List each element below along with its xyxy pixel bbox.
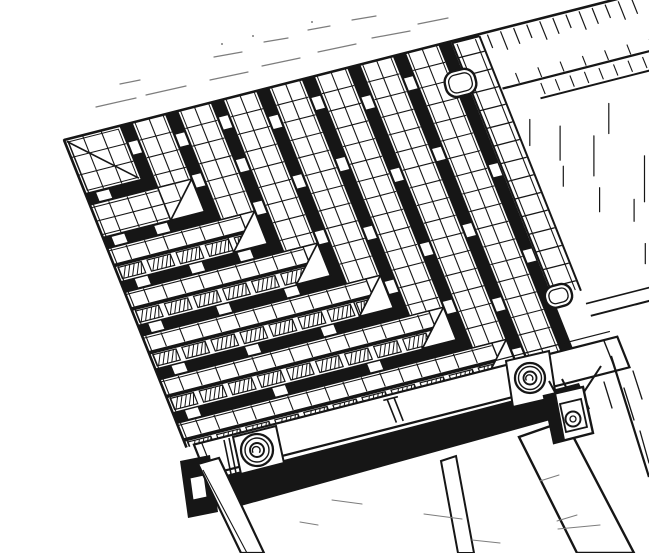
- figure-canvas: Isometric technical line drawing - corne…: [0, 0, 649, 553]
- technical-line-drawing: Isometric technical line drawing - corne…: [0, 0, 649, 553]
